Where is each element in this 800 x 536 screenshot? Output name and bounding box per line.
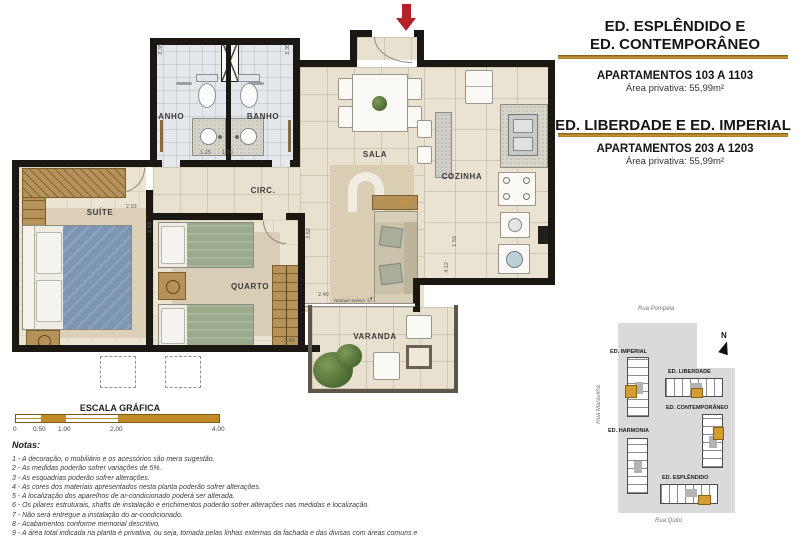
quarto-nightstand xyxy=(158,272,186,300)
building-esplendido xyxy=(660,484,718,504)
wall xyxy=(150,38,157,167)
sofa xyxy=(374,211,418,305)
header-title-1-line-1: ED. ESPLÊNDIDO E xyxy=(555,18,795,35)
laundry-tub xyxy=(500,212,530,238)
washing-machine xyxy=(498,244,530,274)
kitchen-duct xyxy=(538,226,548,244)
quarto-wardrobe xyxy=(272,265,300,347)
header-apartments-1: APARTAMENTOS 103 A 1103 xyxy=(555,70,795,82)
scalebar-tick-label: 0.50 xyxy=(33,426,46,433)
scalebar-segment xyxy=(118,415,219,422)
gold-rule xyxy=(558,133,788,137)
dimension-label: 4.12 xyxy=(444,262,450,273)
building-harmonia xyxy=(627,438,648,494)
circ-label: CIRC. xyxy=(240,186,286,195)
balcony-chair xyxy=(373,352,400,380)
dimension-label: 2.35 xyxy=(285,44,291,55)
balcony-wall xyxy=(308,389,458,393)
sala-label: SALA xyxy=(352,150,398,159)
ac-dashed-box xyxy=(100,356,136,388)
dimension-label: 1.25 xyxy=(200,150,211,156)
varanda-label: VARANDA xyxy=(335,332,415,341)
wall xyxy=(150,38,300,45)
header-apartments-2: APARTAMENTOS 203 A 1203 xyxy=(555,143,795,155)
wall xyxy=(146,190,153,352)
dimension-label: 1.20 xyxy=(222,150,233,156)
dimension-label: 3.43 xyxy=(284,338,295,344)
wall xyxy=(286,213,298,220)
cozinha-label: COZINHA xyxy=(432,172,492,181)
header-title-1-line-2: ED. CONTEMPORÂNEO xyxy=(555,36,795,53)
wall xyxy=(290,160,300,167)
building-imperial xyxy=(627,357,649,417)
note-line: 9 - A área total indicada na planta é pr… xyxy=(12,529,792,536)
toilet-left xyxy=(196,74,218,82)
wall xyxy=(12,160,19,352)
header-area-2: Área privativa: 55,99m² xyxy=(555,156,795,167)
suite-bed xyxy=(22,225,132,330)
building-contemporaneo xyxy=(702,414,723,468)
wall xyxy=(180,160,272,167)
shower-bar-icon xyxy=(176,82,192,85)
wall xyxy=(300,60,354,67)
bath-door-arrow xyxy=(288,120,291,152)
header-title-2: ED. LIBERDADE E ED. IMPERIAL xyxy=(548,117,798,134)
scalebar-tick-label: 0 xyxy=(13,426,17,433)
toilet-right-bowl xyxy=(240,83,258,108)
wall xyxy=(417,60,555,67)
dimension-label: 2.63 xyxy=(147,222,153,233)
ac-dashed-box xyxy=(165,356,201,388)
balcony-table xyxy=(406,345,432,369)
balcony-wall xyxy=(308,305,312,393)
wall xyxy=(226,38,231,167)
scalebar-segment xyxy=(41,415,67,422)
scalebar-title: ESCALA GRÁFICA xyxy=(40,403,200,413)
sofa-side-table xyxy=(372,195,418,210)
floorplan-sheet: SUÍTE BANHO BANHO CIRC. QUARTO xyxy=(0,0,800,536)
suite-pillow xyxy=(36,232,62,274)
wall xyxy=(548,60,555,285)
bar-counter xyxy=(435,112,452,178)
street-label-bottom: Rua Quito xyxy=(655,518,682,524)
north-arrow-icon xyxy=(718,340,732,355)
dimension-label: 2.35 xyxy=(158,44,164,55)
quarto-bed-1 xyxy=(158,222,254,268)
gold-rule xyxy=(558,55,788,59)
wall xyxy=(420,278,555,285)
building-label-esplendido: ED. ESPLÊNDIDO xyxy=(662,475,708,481)
dimension-label: 2.40 xyxy=(318,292,329,298)
wall xyxy=(350,30,372,37)
street-label-top: Rua Pompéia xyxy=(638,306,674,312)
stove xyxy=(498,172,536,206)
suite-bed-headboard xyxy=(23,226,35,329)
bar-stool xyxy=(417,146,432,164)
wall xyxy=(12,160,150,167)
fridge xyxy=(465,70,493,104)
scalebar-tick-label: 4.00 xyxy=(212,426,225,433)
building-liberdade xyxy=(665,378,723,397)
wall xyxy=(293,38,300,167)
dimension-label: 2.62 xyxy=(306,228,312,239)
suite-blanket xyxy=(63,226,131,329)
bath-door-arrow xyxy=(160,120,163,152)
balcony-wall xyxy=(454,305,458,393)
dimension-label: 2.93 xyxy=(126,204,137,210)
quarto-label: QUARTO xyxy=(210,282,290,291)
wall xyxy=(298,213,305,345)
balcony-door-sill xyxy=(305,303,415,307)
scalebar xyxy=(15,414,220,423)
wall xyxy=(12,345,320,352)
table-plant xyxy=(372,96,387,111)
scalebar-tick-label: 2.00 xyxy=(110,426,123,433)
dining-chair xyxy=(338,78,353,100)
suite-closet-top xyxy=(22,168,126,198)
building-label-liberdade: ED. LIBERDADE xyxy=(668,369,711,375)
toilet-right xyxy=(238,74,260,82)
street-label-left: Rua Maravilha xyxy=(596,385,602,424)
building-label-harmonia: ED. HARMONIA xyxy=(608,428,649,434)
kitchen-sink xyxy=(508,114,538,156)
banho-right-label: BANHO xyxy=(240,112,286,121)
wall xyxy=(150,160,162,167)
dining-chair xyxy=(338,106,353,128)
scalebar-segment xyxy=(66,415,119,422)
quarto-bed-2 xyxy=(158,304,254,348)
notes-title: Notas: xyxy=(12,440,40,450)
dining-chair xyxy=(407,78,422,100)
building-label-imperial: ED. IMPERIAL xyxy=(610,349,647,355)
dimension-label: 1.53 xyxy=(452,236,458,247)
scalebar-segment xyxy=(16,415,42,422)
sink-counter-right xyxy=(230,118,264,156)
bar-stool xyxy=(417,120,432,138)
balcony-plant xyxy=(336,344,362,368)
toilet-left-bowl xyxy=(198,83,216,108)
north-label: N xyxy=(721,331,727,340)
wall xyxy=(153,213,263,220)
header-area-1: Área privativa: 55,99m² xyxy=(555,83,795,94)
suite-pillow xyxy=(36,280,62,322)
building-label-contemporaneo: ED. CONTEMPORÂNEO xyxy=(666,405,728,411)
scalebar-tick-label: 1.00 xyxy=(58,426,71,433)
